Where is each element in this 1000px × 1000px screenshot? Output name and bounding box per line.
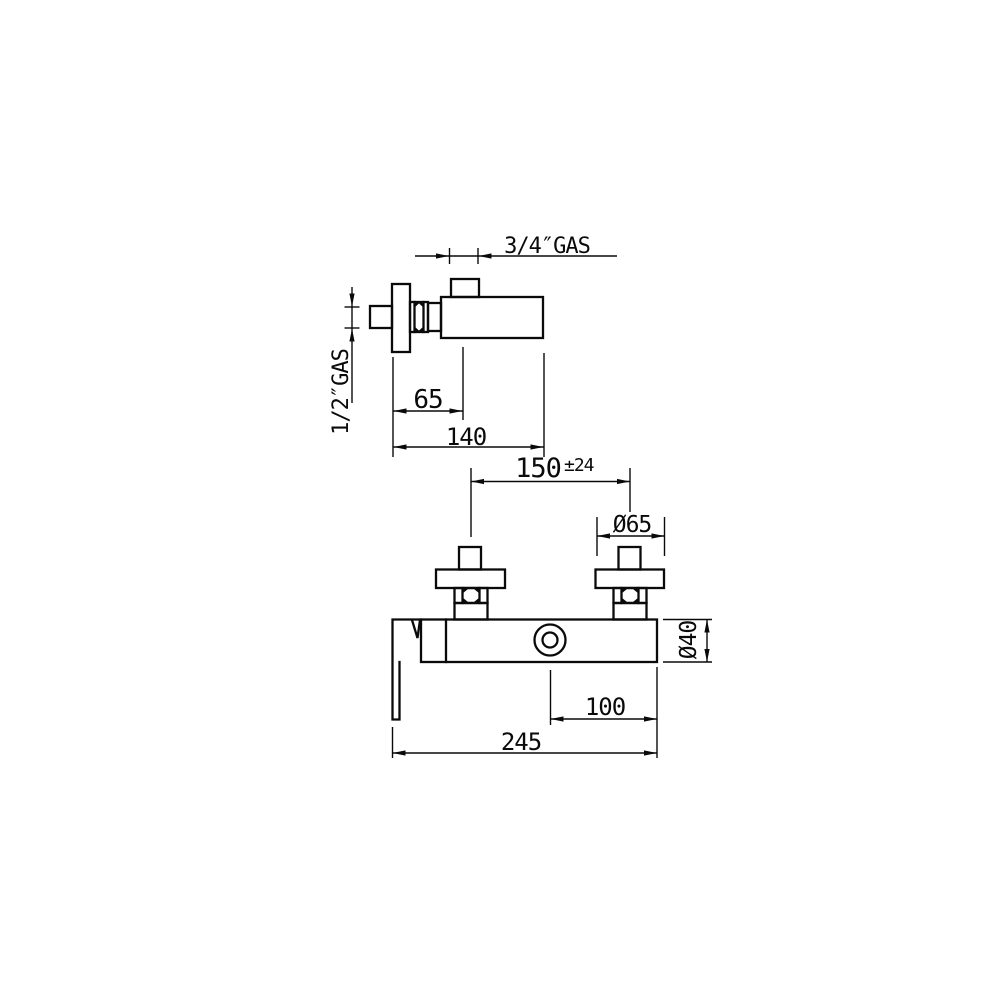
side-outlet-port (451, 279, 479, 297)
dim-label-65: 65 (413, 385, 442, 415)
left-inlet-stem (455, 603, 488, 620)
dim-arrow (617, 479, 630, 484)
dim-label-dia40: Ø40 (676, 621, 702, 660)
dim-arrow (349, 294, 354, 307)
dim-arrow (479, 253, 492, 258)
dim-arrow (436, 253, 449, 258)
dim-label-140: 140 (446, 423, 486, 451)
side-wall-flange (392, 284, 410, 352)
mixer-dimension-drawing: 3/4″GAS 1/2″GAS 65 140 (0, 0, 1000, 1000)
front-body (421, 620, 657, 663)
side-hex-nut (410, 302, 428, 332)
dim-arrow (644, 716, 657, 721)
right-inlet-stem (614, 603, 647, 620)
side-collar (428, 303, 441, 331)
left-inlet-stub (459, 547, 481, 570)
dim-arrow (652, 533, 665, 538)
side-view-fixture-outline (370, 279, 543, 352)
dim-arrow (597, 533, 610, 538)
dim-label-150-tolerance: ±24 (564, 455, 594, 476)
front-view-dimensions: 150 ±24 Ø65 Ø40 100 (393, 453, 713, 758)
side-body (441, 297, 543, 338)
side-view: 3/4″GAS 1/2″GAS 65 140 (329, 234, 617, 457)
right-inlet-nut (614, 588, 647, 603)
dim-label-dia65: Ø65 (613, 512, 652, 538)
dim-arrow (349, 329, 354, 342)
left-inlet-nut (455, 588, 488, 603)
dim-arrow (394, 408, 407, 413)
side-view-dimensions: 3/4″GAS 1/2″GAS 65 140 (329, 234, 617, 457)
dim-arrow (704, 620, 709, 633)
right-inlet-stub (619, 547, 641, 570)
front-lever-notch (412, 620, 420, 638)
dim-arrow (394, 444, 407, 449)
dim-label-100: 100 (585, 693, 625, 721)
diverter-button-inner (543, 633, 558, 648)
right-inlet-flange (596, 570, 665, 589)
dim-label-150: 150 (515, 453, 561, 484)
front-view: 150 ±24 Ø65 Ø40 100 (393, 453, 713, 758)
dim-arrow (393, 750, 406, 755)
dim-arrow (471, 479, 484, 484)
left-inlet-flange (436, 570, 505, 589)
dim-arrow (450, 408, 463, 413)
side-inlet-stub (370, 306, 392, 328)
diverter-button-outer (535, 625, 566, 656)
dim-arrow (704, 649, 709, 662)
dim-arrow (551, 716, 564, 721)
dim-arrow (531, 444, 544, 449)
dim-arrow (644, 750, 657, 755)
dim-label-outlet-thread: 3/4″GAS (504, 234, 590, 259)
dim-label-245: 245 (501, 728, 541, 756)
technical-drawing-sheet: 3/4″GAS 1/2″GAS 65 140 (0, 0, 1000, 1000)
dim-label-inlet-thread: 1/2″GAS (329, 349, 354, 435)
